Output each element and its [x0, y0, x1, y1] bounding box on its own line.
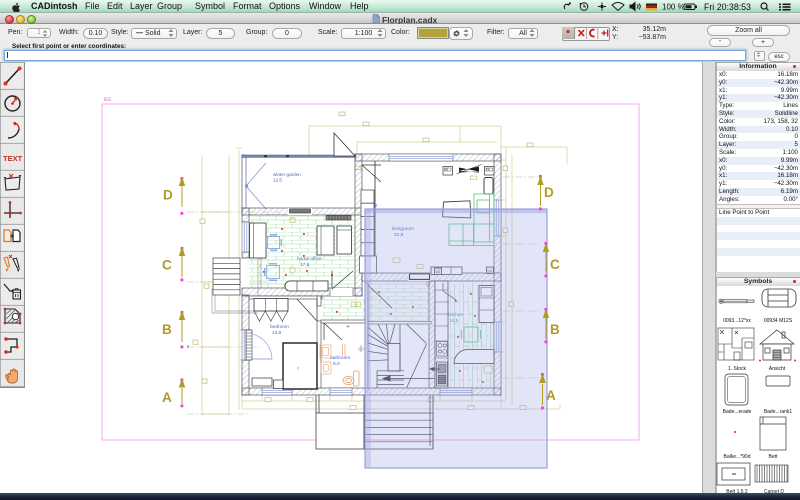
svg-text:Bade...erade: Bade...erade	[723, 409, 752, 415]
svg-text:00934 M12S: 00934 M12S	[764, 318, 793, 324]
svg-text:Bade...rank1: Bade...rank1	[764, 409, 793, 415]
svg-text:B: B	[550, 322, 560, 337]
svg-text:home office: home office	[297, 256, 322, 262]
svg-text:B: B	[162, 322, 172, 337]
svg-text:Balke...*90d: Balke...*90d	[724, 454, 751, 460]
svg-text:17,5: 17,5	[300, 262, 310, 268]
svg-text:A: A	[546, 388, 556, 403]
svg-text:1. Stock: 1. Stock	[728, 366, 747, 372]
svg-text:Fri 20:38:53: Fri 20:38:53	[704, 2, 751, 12]
svg-text:6,0: 6,0	[333, 361, 340, 367]
svg-text:Bett: Bett	[769, 454, 779, 460]
svg-text:FB: FB	[445, 168, 449, 172]
svg-text:13,8: 13,8	[272, 330, 282, 336]
svg-text:0093...12*xx: 0093...12*xx	[723, 318, 751, 324]
svg-text:EG: EG	[104, 97, 111, 103]
svg-text:D: D	[163, 188, 173, 203]
svg-text:12,5: 12,5	[273, 178, 282, 183]
svg-text:bedroom: bedroom	[270, 324, 289, 330]
svg-text:Ansicht: Ansicht	[769, 366, 786, 372]
svg-text:C: C	[550, 257, 560, 272]
svg-text:100 %: 100 %	[662, 3, 685, 12]
svg-text:bathroom: bathroom	[330, 355, 350, 361]
svg-text:TEXT: TEXT	[3, 154, 23, 163]
svg-text:FB: FB	[486, 168, 490, 172]
svg-text:D: D	[544, 185, 554, 200]
svg-text:winter garden: winter garden	[273, 172, 301, 177]
svg-text:C: C	[162, 258, 172, 273]
svg-text:A: A	[162, 390, 172, 405]
